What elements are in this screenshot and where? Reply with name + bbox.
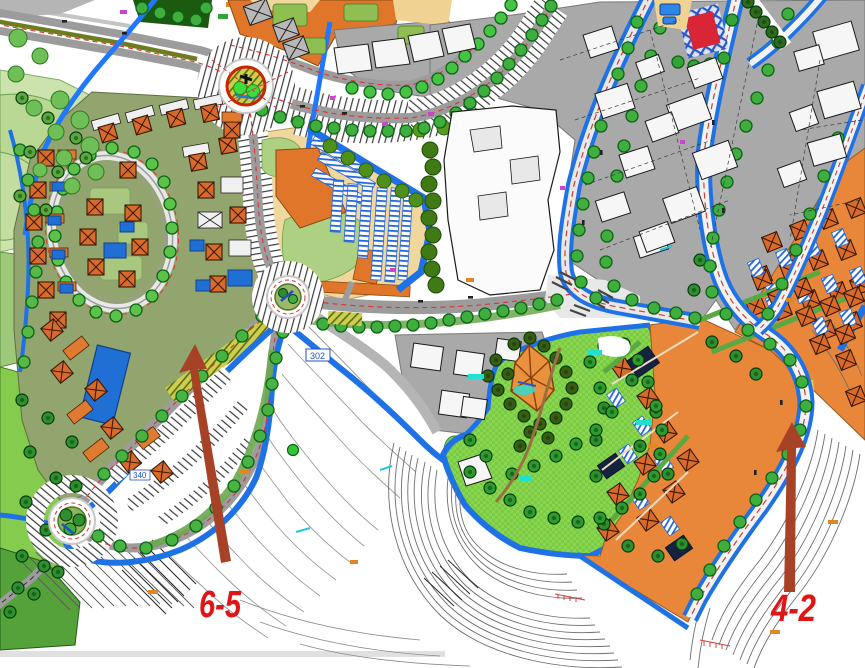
- svg-text:6-5: 6-5: [199, 584, 242, 626]
- svg-text:4-2: 4-2: [770, 588, 816, 630]
- svg-text:302: 302: [310, 351, 325, 361]
- svg-text:340: 340: [133, 471, 147, 480]
